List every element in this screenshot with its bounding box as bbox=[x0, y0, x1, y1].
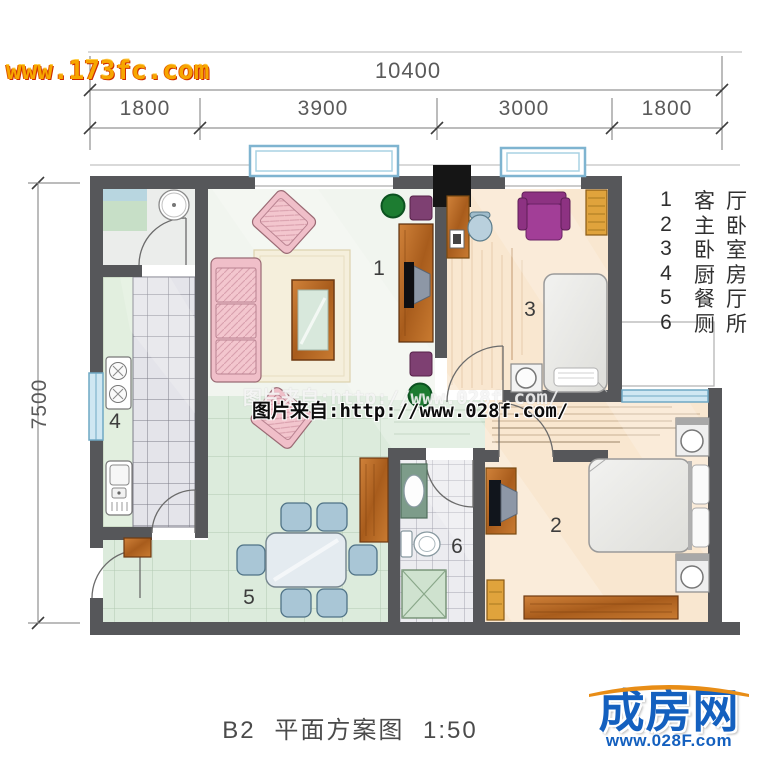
room-label-dining: 5 bbox=[236, 586, 262, 610]
headboard bbox=[688, 461, 692, 550]
pillow-1 bbox=[692, 465, 709, 504]
legend-num: 4 bbox=[656, 262, 676, 286]
legend-num: 1 bbox=[656, 188, 676, 212]
bedroom3-bay-window bbox=[501, 148, 585, 176]
dim-left-total: 7500 bbox=[28, 374, 52, 434]
wall-bedroom2-top-a bbox=[485, 450, 499, 462]
single-bed bbox=[544, 274, 607, 392]
logo-swoosh-icon bbox=[585, 681, 753, 697]
basin bbox=[404, 475, 424, 507]
tv-cabinet bbox=[399, 224, 433, 342]
legend-num: 5 bbox=[656, 286, 676, 310]
pillow-2 bbox=[692, 508, 709, 547]
balcony-counter-blue bbox=[103, 189, 147, 201]
room-label-living: 1 bbox=[366, 257, 392, 281]
credit-watermark: 图片来自:http://www.028f.com/ bbox=[252, 396, 568, 423]
pillow bbox=[554, 368, 598, 386]
dim-segment-3000: 3000 bbox=[484, 97, 564, 121]
purple-armchair bbox=[518, 192, 570, 240]
tv2-screen bbox=[489, 480, 501, 526]
small-cabinet bbox=[487, 580, 504, 620]
tv-screen bbox=[404, 262, 414, 308]
wardrobe bbox=[524, 596, 678, 619]
wall-kitchen-right bbox=[195, 176, 208, 538]
bedroom3-window-gap bbox=[505, 176, 581, 189]
plant-top bbox=[382, 195, 405, 218]
room-label-toilet: 6 bbox=[444, 535, 470, 559]
room-label-kitchen: 4 bbox=[102, 410, 128, 434]
desk-chair bbox=[468, 212, 492, 241]
desk bbox=[447, 196, 469, 258]
toilet bbox=[401, 531, 440, 557]
sofa-three-seat bbox=[211, 258, 261, 382]
room-legend: 1 客厅 2 主卧 3 卧室 4 厨房 5 餐厅 6 厕所 bbox=[656, 188, 758, 335]
wall-bath-left bbox=[388, 448, 400, 622]
dim-segment-1800-right: 1800 bbox=[627, 97, 707, 121]
site-watermark: www.173fc.com bbox=[6, 56, 210, 86]
nightstand-top bbox=[676, 418, 709, 456]
legend-num: 6 bbox=[656, 311, 676, 335]
wall-bottom bbox=[90, 622, 740, 635]
floorplan-page: www.173fc.com 10400 1800 3900 3000 1800 … bbox=[0, 0, 780, 774]
wall-corner-window bbox=[608, 388, 622, 402]
entry-floor bbox=[103, 540, 208, 622]
wall-left-upper bbox=[90, 176, 103, 548]
dresser bbox=[586, 190, 607, 235]
dim-segment-3900: 3900 bbox=[278, 97, 368, 121]
legend-num: 2 bbox=[656, 213, 676, 237]
wall-right-lower bbox=[708, 388, 722, 635]
site-logo: 成房网 www.028F.com bbox=[585, 688, 753, 751]
shower bbox=[402, 570, 446, 618]
legend-row-toilet: 6 厕所 bbox=[656, 311, 758, 336]
stool-bottom bbox=[410, 352, 432, 376]
wall-bedroom3-right bbox=[608, 176, 622, 402]
logo-url: www.028F.com bbox=[585, 731, 753, 751]
double-bed bbox=[589, 459, 709, 552]
dim-top-total: 10400 bbox=[338, 58, 478, 84]
wall-bath-top bbox=[388, 448, 426, 460]
wall-bath-right bbox=[473, 448, 485, 622]
balcony-counter-green bbox=[103, 201, 147, 231]
balcony bbox=[159, 190, 189, 220]
dim-segment-1800-left: 1800 bbox=[105, 97, 185, 121]
legend-num: 3 bbox=[656, 237, 676, 261]
plan-caption: B2 平面方案图 1:50 bbox=[200, 710, 500, 745]
entry-console bbox=[124, 538, 151, 557]
wall-balcony-bottom bbox=[90, 265, 142, 277]
sink bbox=[106, 461, 132, 515]
living-window-gap bbox=[255, 176, 393, 189]
wash-counter bbox=[401, 464, 427, 518]
tv-cabinet-bed2 bbox=[486, 468, 517, 534]
nightstand-bottom bbox=[676, 554, 709, 592]
stove bbox=[106, 357, 131, 409]
stool-top bbox=[410, 196, 432, 220]
coffee-table bbox=[292, 280, 334, 360]
room-label-master: 2 bbox=[543, 514, 569, 538]
room-label-bedroom: 3 bbox=[517, 298, 543, 322]
legend-name: 厕所 bbox=[694, 308, 758, 338]
wall-living-bed3 bbox=[435, 200, 447, 358]
